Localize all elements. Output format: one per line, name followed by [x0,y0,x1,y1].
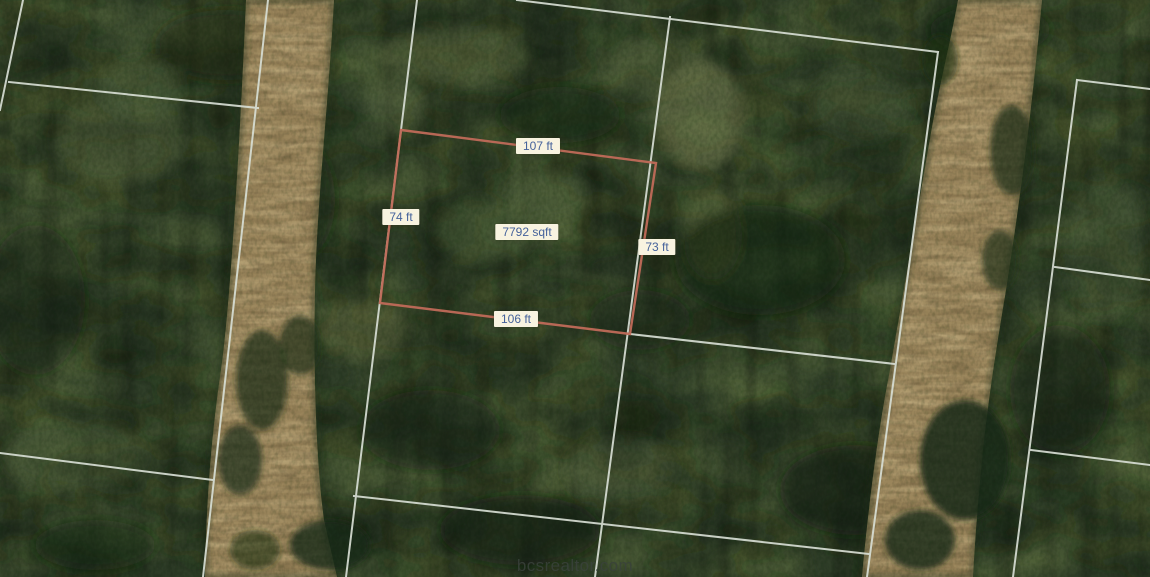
satellite-map-viewport[interactable]: 107 ft 74 ft 7792 sqft 73 ft 106 ft bcsr… [0,0,1150,577]
dimension-label-bottom: 106 ft [494,311,538,327]
grain-overlay [0,0,1150,577]
watermark: bcsrealtor.com [517,556,633,576]
satellite-imagery [0,0,1150,577]
parcel-area-label: 7792 sqft [495,224,558,240]
dimension-label-left: 74 ft [382,209,419,225]
dimension-label-right: 73 ft [638,239,675,255]
dimension-label-top: 107 ft [516,138,560,154]
